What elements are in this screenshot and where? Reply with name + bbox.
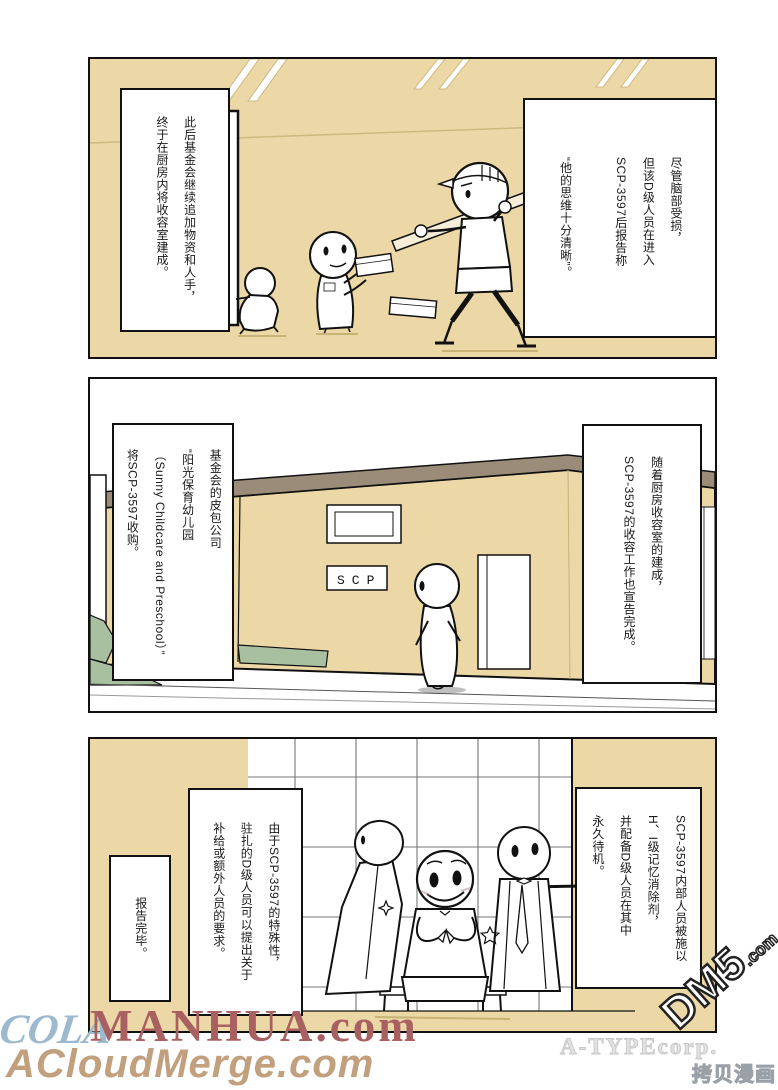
comic-panel-3: 报告完毕。 由于SCP-3597的特殊性， 驻扎的D级人员可以提出关于 补给或额… [88, 737, 717, 1033]
box-on-floor [389, 297, 436, 318]
ceiling-lights [220, 59, 649, 101]
watermark-kaobei: 拷贝漫画 [692, 1058, 776, 1087]
comic-panel-2: SCP [88, 377, 717, 713]
sidewalk [90, 684, 715, 709]
narration-text: 此后基金会继续追加物资和人手， 终于在厨房内将收容室建成。 [147, 116, 202, 304]
narration-box: 由于SCP-3597的特殊性， 驻扎的D级人员可以提出关于 补给或额外人员的要求… [188, 788, 303, 1016]
comic-panel-1: 此后基金会继续追加物资和人手， 终于在厨房内将收容室建成。 尽管脑部受损， 但该… [88, 57, 717, 359]
narration-box: 随着厨房收容室的建成， SCP-3597的收容工作也宣告完成。 [582, 424, 702, 684]
watermark-atype-corp: A-TYPEcorp. [560, 1034, 718, 1060]
building-door [478, 555, 530, 669]
narration-text: 尽管脑部受损， 但该D级人员在进入 SCP-3597后报告称 “他的思维十分清晰… [551, 157, 689, 279]
stick-figure-crouching [236, 268, 278, 334]
narration-text: SCP-3597内部人员被施以 H、I级记忆消除剂， 并配备D级人员在其中 永久… [583, 815, 693, 962]
stick-figure-carrying-box [310, 232, 393, 334]
narration-box: 报告完毕。 [109, 855, 171, 1002]
narration-box: 尽管脑部受损， 但该D级人员在进入 SCP-3597后报告称 “他的思维十分清晰… [523, 98, 717, 338]
watermark-acloudmerge: ACloudMerge.com [6, 1042, 374, 1087]
floor-shadow-lines [238, 334, 538, 351]
scp-sign: SCP [327, 566, 387, 590]
window [327, 505, 401, 543]
scp-sign-text: SCP [337, 573, 381, 588]
narration-box: SCP-3597内部人员被施以 H、I级记忆消除剂， 并配备D级人员在其中 永久… [575, 787, 702, 989]
stick-figure-suited-right [490, 827, 560, 991]
narration-text: 由于SCP-3597的特殊性， 驻扎的D级人员可以提出关于 补给或额外人员的要求… [204, 822, 287, 981]
narration-box: 此后基金会继续追加物资和人手， 终于在厨房内将收容室建成。 [120, 88, 230, 332]
narration-text: 随着厨房收容室的建成， SCP-3597的收容工作也宣告完成。 [614, 456, 669, 653]
narration-text: 基金会的皮包公司 “阳光保育幼儿园 （Sunny Childcare and P… [118, 449, 228, 655]
narration-box: 基金会的皮包公司 “阳光保育幼儿园 （Sunny Childcare and P… [112, 423, 234, 681]
comic-page: 此后基金会继续追加物资和人手， 终于在厨房内将收容室建成。 尽管脑部受损， 但该… [0, 0, 778, 1090]
narration-text: 报告完毕。 [126, 897, 154, 960]
